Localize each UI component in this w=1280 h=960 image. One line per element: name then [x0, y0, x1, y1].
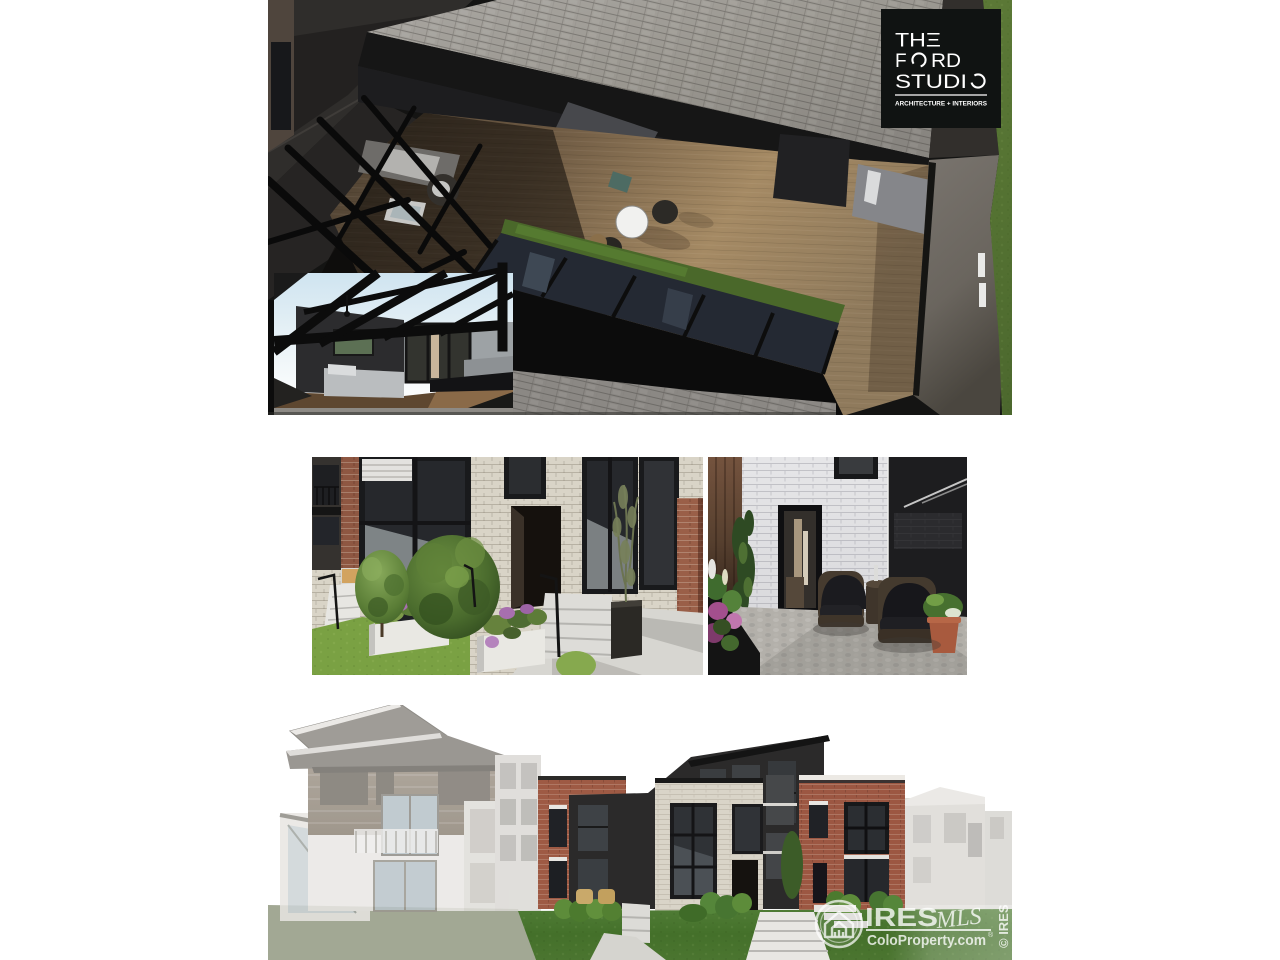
svg-text:F: F	[895, 51, 907, 72]
svg-text:THΞ: THΞ	[895, 31, 941, 52]
svg-text:IRES: IRES	[865, 902, 938, 932]
svg-text:ColoProperty.com: ColoProperty.com	[867, 932, 986, 949]
svg-text:RD: RD	[931, 51, 961, 72]
svg-text:STUDI: STUDI	[895, 72, 967, 93]
svg-text:© IRES: © IRES	[996, 904, 1011, 948]
svg-text:®: ®	[988, 931, 994, 939]
svg-text:ARCHITECTURE + INTERIORS: ARCHITECTURE + INTERIORS	[895, 101, 987, 108]
